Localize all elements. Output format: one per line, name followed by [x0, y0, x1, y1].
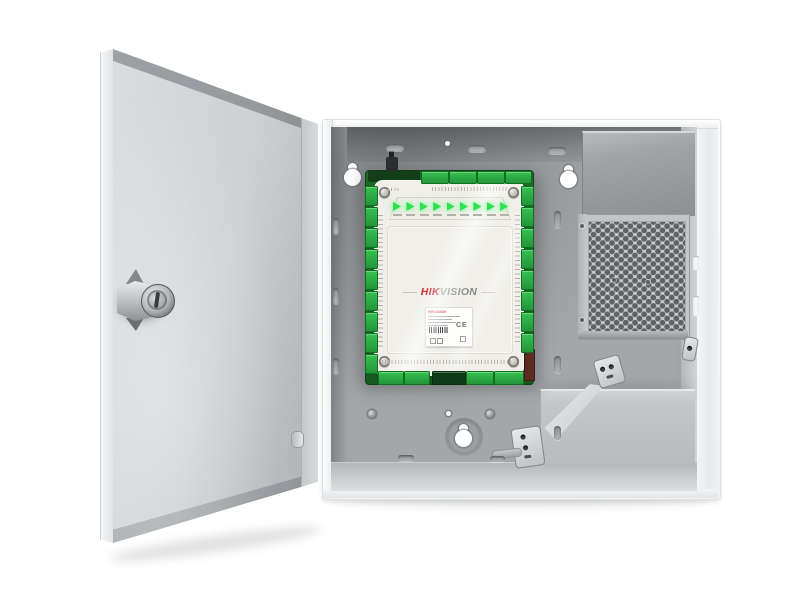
led-label	[500, 214, 509, 216]
led-arrow-icon	[406, 202, 414, 211]
led-label	[447, 214, 456, 216]
terminal-block	[521, 333, 534, 353]
terminal-block	[365, 207, 378, 227]
terminal-block	[365, 270, 378, 290]
led-indicator	[500, 202, 508, 211]
keyhole-mask	[347, 169, 358, 181]
led-indicator	[420, 202, 428, 211]
terminal-block	[365, 291, 378, 311]
terminal-block	[404, 371, 430, 385]
knockout-slot	[333, 218, 339, 234]
keyhole-mask	[458, 430, 469, 442]
led-label	[460, 214, 469, 216]
power-supply-cover-panel	[582, 131, 695, 216]
led-indicator	[460, 202, 468, 211]
led-indicator	[433, 202, 441, 211]
clip-hole	[523, 445, 529, 451]
clip-hole	[600, 366, 606, 372]
mounting-keyhole-top-left	[344, 163, 361, 187]
led-label	[406, 214, 415, 216]
power-supply-vent-mesh	[588, 221, 686, 333]
knockout-slot	[554, 211, 561, 228]
clip-hole	[687, 346, 693, 352]
knockout-slot	[386, 144, 404, 151]
terminal-block	[449, 171, 477, 184]
knockout-slot	[468, 145, 486, 152]
right-wall-notch	[693, 296, 699, 316]
led-indicator	[406, 202, 414, 211]
terminal-block	[521, 312, 534, 332]
led-label	[487, 214, 496, 216]
right-wall-notch	[693, 256, 699, 270]
door-hinge-flange	[301, 118, 318, 487]
led-arrow-icon	[420, 202, 428, 211]
terminal-block	[521, 249, 534, 269]
led-indicator	[487, 202, 495, 211]
mounting-keyhole-top-right	[560, 165, 577, 189]
keyhole-mask	[563, 171, 574, 183]
led-arrow-icon	[447, 202, 455, 211]
psu-screw	[646, 280, 650, 284]
terminal-block	[378, 371, 404, 385]
pcb-component	[524, 349, 535, 381]
led-indicator	[473, 202, 481, 211]
terminal-block	[365, 354, 378, 374]
led-label	[420, 214, 429, 216]
terminal-block	[365, 249, 378, 269]
clip-slot	[524, 455, 531, 459]
wall-screw	[486, 410, 494, 418]
led-indicator	[447, 202, 455, 211]
mounting-keyhole-bottom	[455, 424, 472, 448]
psu-screw	[580, 224, 584, 228]
product-photo: HIKVISION HIKVISION CE	[0, 0, 800, 600]
led-arrow-icon	[487, 202, 495, 211]
led-arrow-icon	[473, 202, 481, 211]
hinge-pin	[291, 431, 304, 448]
knockout-slot	[333, 288, 339, 304]
led-indicator	[393, 202, 401, 211]
clip-slot	[606, 374, 614, 379]
terminal-block	[432, 371, 466, 385]
terminal-block	[365, 228, 378, 248]
door-front-edge	[100, 49, 114, 543]
led-label	[433, 214, 442, 216]
clip-hole	[608, 364, 614, 370]
terminal-block	[421, 171, 449, 184]
terminal-block	[365, 186, 378, 206]
terminal-block	[521, 207, 534, 227]
led-arrow-icon	[500, 202, 508, 211]
led-label	[473, 214, 482, 216]
wall-hole	[445, 141, 450, 146]
knockout-slot	[554, 426, 561, 440]
psu-screw	[612, 278, 616, 282]
clip-hole	[520, 434, 526, 440]
psu-screw	[580, 318, 584, 322]
led-arrow-icon	[433, 202, 441, 211]
wall-hole	[446, 411, 451, 416]
knockout-slot	[398, 455, 414, 461]
terminal-block	[521, 291, 534, 311]
terminal-block	[477, 171, 505, 184]
terminal-block	[521, 228, 534, 248]
tamper-switch	[386, 157, 398, 171]
led-arrow-icon	[460, 202, 468, 211]
terminal-block	[521, 270, 534, 290]
power-supply-base	[578, 331, 688, 339]
terminal-block	[505, 171, 532, 184]
knockout-slot	[490, 456, 505, 462]
wall-screw	[368, 410, 376, 418]
knockout-slot	[554, 356, 561, 373]
knockout-slot	[333, 358, 339, 374]
led-arrow-icon	[393, 202, 401, 211]
terminal-block	[365, 333, 378, 353]
led-label	[393, 214, 402, 216]
terminal-block	[521, 186, 534, 206]
terminal-block	[466, 371, 494, 385]
terminal-block	[365, 312, 378, 332]
enclosure-right-wall	[696, 120, 718, 497]
terminal-block	[494, 371, 524, 385]
knockout-slot	[548, 147, 566, 154]
